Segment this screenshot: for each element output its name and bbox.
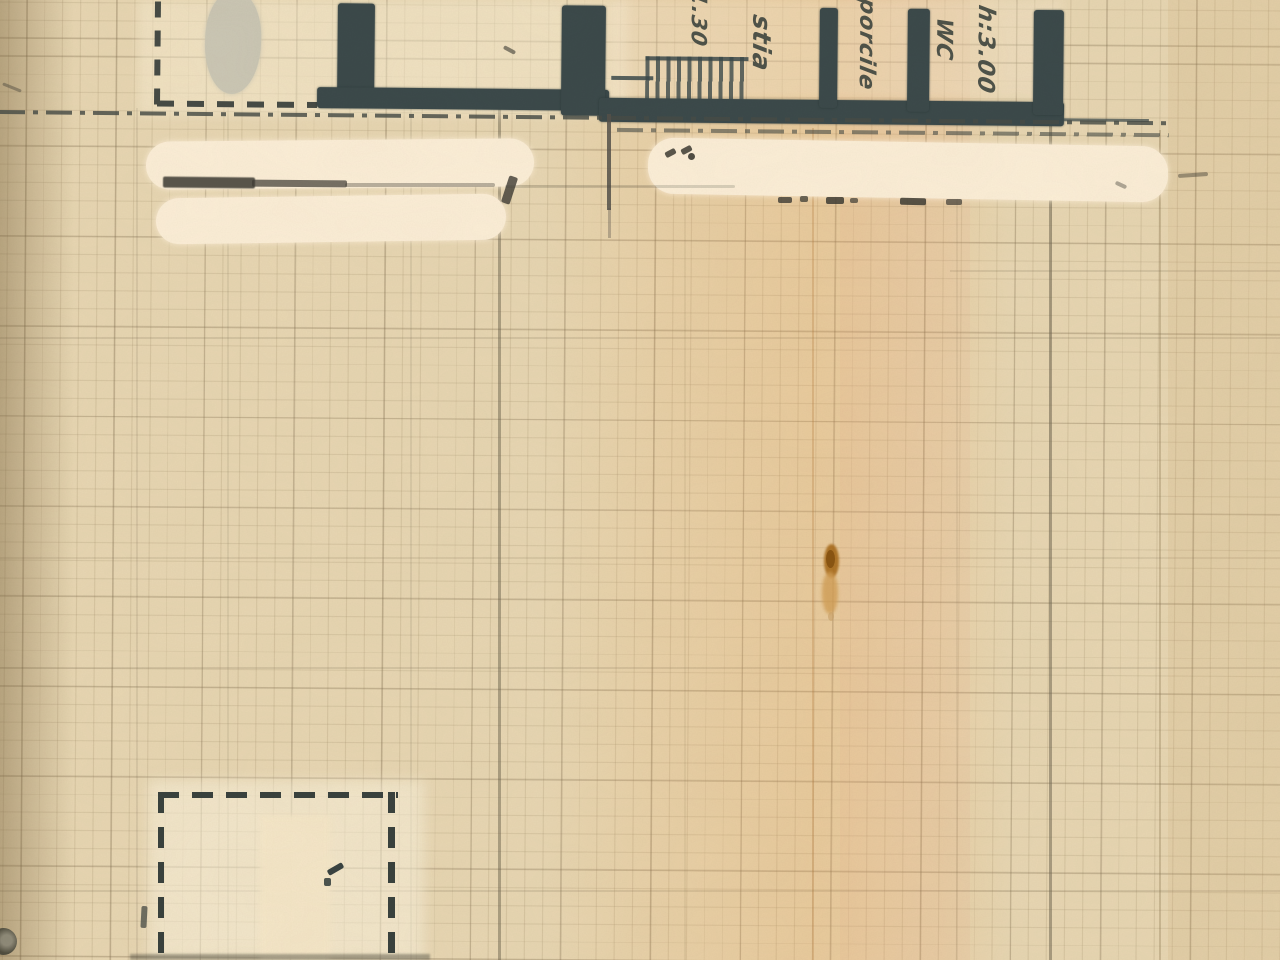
pencil-dash: [140, 906, 147, 928]
erased-text-smudge: [345, 183, 495, 187]
wall-partition-porcile: [819, 8, 838, 108]
pencil-drop-line-fade: [608, 208, 611, 238]
erased-text-smudge: [252, 180, 347, 188]
erased-text-smudge: [900, 198, 926, 205]
redaction-blob-left-2: [156, 194, 507, 245]
ink-dot: [688, 153, 695, 160]
stairs-hatch: [611, 54, 747, 105]
erased-text-smudge: [946, 199, 962, 205]
dashed-outline-bottom-rect-top: [158, 792, 398, 798]
dimension-label: 1.30: [687, 0, 711, 49]
room-label-porcile: porcile: [854, 0, 880, 93]
room-label-stia: stia: [747, 12, 776, 74]
height-note-label: h:3.00: [972, 3, 999, 96]
dashed-outline-bottom-rect-right: [388, 792, 395, 960]
erased-text-smudge: [826, 197, 844, 204]
wall-corner-right: [1033, 10, 1064, 115]
erased-text-smudge: [163, 177, 255, 189]
rust-stain: [818, 544, 846, 624]
rust-stain-light: [822, 572, 838, 614]
grid-accent-line: [0, 667, 1280, 669]
rust-stain-drip: [828, 612, 834, 621]
scanned-floor-plan-sheet: 1.30 stia porcile WC h:3.00: [0, 0, 1280, 960]
erased-text-smudge: [800, 196, 808, 202]
erased-text-smudge: [850, 198, 858, 203]
dashed-outline-left-edge: [154, 1, 161, 107]
wall-partition-wc: [907, 9, 930, 112]
grid-accent-line: [0, 337, 1280, 339]
stairs-steps: [645, 56, 748, 103]
grid-accent-line: [0, 890, 1280, 892]
pencil-drop-line: [607, 114, 611, 210]
erased-text-smudge: [505, 185, 735, 188]
boundary-dashdot-line-lower: [617, 128, 1169, 137]
rust-stain-core: [826, 550, 835, 568]
erased-text-smudge: [778, 197, 792, 203]
dashed-outline-bottom-rect-left: [158, 792, 164, 960]
dashed-outline-bottom-edge: [157, 101, 317, 109]
pencil-check-dot: [324, 878, 331, 886]
grid-accent-line: [0, 557, 1280, 559]
redaction-blob-right: [648, 137, 1169, 202]
room-label-wc: WC: [931, 16, 956, 63]
